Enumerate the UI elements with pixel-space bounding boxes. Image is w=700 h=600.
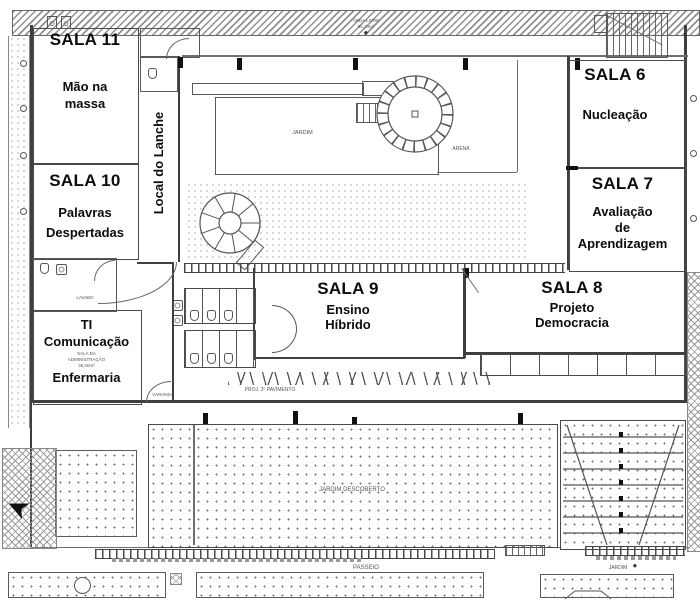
- label-sala6-line1: Nucleação: [560, 108, 670, 122]
- paving-edge: [437, 172, 517, 173]
- column: [237, 58, 242, 70]
- toilet-fixture: [224, 310, 233, 321]
- toilet-fixture: [190, 353, 199, 364]
- corridor-east-wall: [178, 56, 180, 262]
- steps-lines-icon: [561, 421, 685, 549]
- wall-marker: [690, 95, 697, 102]
- label-sala9-line1: Ensino: [243, 303, 453, 317]
- label-administracao-1: SALA DA: [33, 351, 140, 356]
- toilet-fixture: [207, 310, 216, 321]
- left-walkway-strip: [8, 36, 30, 428]
- terraced-steps: [560, 420, 686, 550]
- wall-marker: [690, 150, 697, 157]
- label-ti: TI: [33, 318, 140, 332]
- label-jardim-descoberto: JARDIM DESCOBERTO: [252, 487, 452, 494]
- garden-jardim-descoberto: [148, 424, 558, 548]
- vestibule-curved-wall: [98, 262, 177, 304]
- stair-landing: [594, 15, 608, 33]
- label-enfermaria: Enfermaria: [33, 371, 140, 385]
- label-sala7-line3: Aprendizagem: [565, 237, 680, 251]
- micro-note: [112, 558, 362, 562]
- label-comunicacao: Comunicação: [33, 335, 140, 349]
- ramp-icon: [563, 590, 613, 600]
- label-passeio: PASSEIO: [336, 565, 396, 572]
- paving-edge: [517, 60, 518, 172]
- label-area-livre-1: ÁREA LIVRE: [338, 18, 394, 23]
- label-varanda: VARANDA: [141, 392, 185, 397]
- sink-fixture: [56, 264, 67, 275]
- label-sala9-title: SALA 9: [243, 280, 453, 298]
- toilet-fixture: [224, 353, 233, 364]
- label-jardim: JARDIM: [280, 130, 325, 136]
- arena-icon: [375, 74, 455, 154]
- label-administracao-2: ADMINISTRAÇÃO: [33, 357, 140, 362]
- wall-marker: [20, 60, 27, 67]
- toilet-fixture: [190, 310, 199, 321]
- garden-small: [55, 450, 137, 537]
- column: [178, 57, 183, 68]
- label-sala6-title: SALA 6: [560, 66, 670, 84]
- label-sala11-title: SALA 11: [33, 31, 137, 49]
- door-hinge-fixture: [47, 16, 57, 29]
- label-sala10-line1: Palavras: [33, 206, 137, 220]
- wall-marker: [20, 208, 27, 215]
- crosshatch-right: [687, 272, 700, 552]
- label-sala7-title: SALA 7: [565, 175, 680, 193]
- courtyard-counter: [192, 83, 364, 95]
- wall-marker: [20, 105, 27, 112]
- toilet-fixture: [207, 353, 216, 364]
- label-sala11-line2: massa: [33, 97, 137, 111]
- label-sala8-title: SALA 8: [462, 279, 682, 297]
- vestibule-wall: [172, 262, 174, 403]
- toilet-fixture: [148, 68, 157, 79]
- label-sala9-line2: Híbrido: [243, 318, 453, 332]
- sidewalk-edge-right: [585, 546, 685, 556]
- label-area-livre-2: 95,20m²: [338, 24, 394, 29]
- wall-marker: [20, 152, 27, 159]
- label-sala7-line2: de: [565, 221, 680, 235]
- label-administracao-3: 36,00m²: [33, 363, 140, 368]
- garden-inner-wall: [193, 425, 195, 545]
- label-sala8-line1: Projeto: [462, 301, 682, 315]
- column: [353, 58, 358, 70]
- label-local-do-lanche: Local do Lanche: [152, 87, 168, 239]
- label-jardim-bottom: JARDIM: [600, 566, 636, 572]
- micro-note: [596, 556, 676, 560]
- door-hinge-fixture: [61, 16, 71, 29]
- column: [463, 58, 468, 70]
- label-sala8-line2: Democracia: [462, 316, 682, 330]
- label-proj-2-pavimento: PROJ. 2º PAVIMENTO: [235, 388, 305, 394]
- label-sala10-title: SALA 10: [33, 172, 137, 190]
- sala9-south-wall: [253, 357, 465, 359]
- label-sala11-line1: Mão na: [33, 80, 137, 94]
- label-sala10-line2: Despertadas: [33, 226, 137, 240]
- label-lavabo: LAVABO: [70, 295, 100, 300]
- wall-marker: [690, 215, 697, 222]
- drain-grate: [505, 545, 545, 556]
- grate-symbol: [170, 573, 182, 585]
- sala8-cabinets: [480, 354, 687, 376]
- planter: [196, 572, 484, 598]
- label-arena: ARENA: [445, 147, 477, 153]
- toilet-fixture: [40, 263, 49, 274]
- door-post: [566, 166, 578, 170]
- label-sala7-line1: Avaliação: [565, 205, 680, 219]
- level-marker-icon: ◆: [364, 31, 368, 36]
- tree-symbol: [74, 577, 91, 594]
- veranda-floor-marks: [228, 372, 490, 385]
- wall-ticks: [184, 263, 565, 273]
- floor-plan-canvas: ➤ ◆ ◆ SALA 11 Mão na massa SALA 10 Palav…: [0, 0, 700, 600]
